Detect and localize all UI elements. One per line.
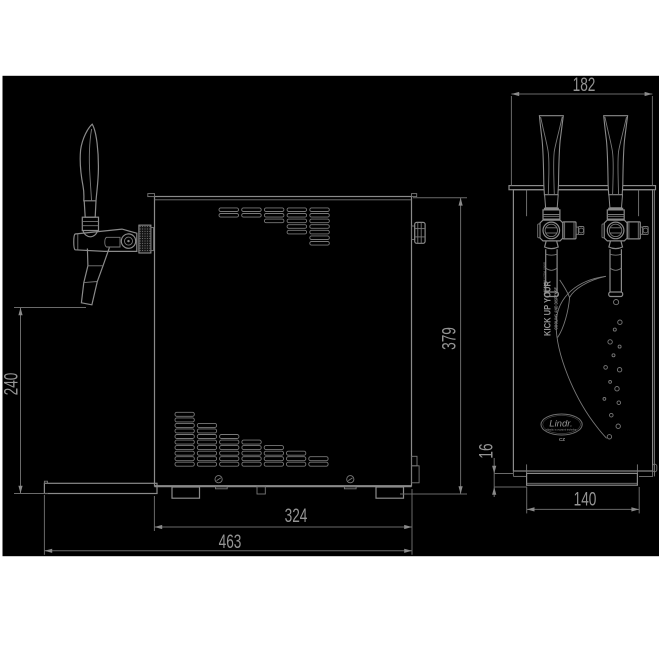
svg-text:CZ: CZ bbox=[559, 437, 565, 442]
svg-text:379: 379 bbox=[438, 327, 460, 350]
svg-text:324: 324 bbox=[285, 505, 308, 527]
svg-text:240: 240 bbox=[0, 373, 22, 396]
svg-text:chladici a vycepni technika: chladici a vycepni technika bbox=[546, 428, 577, 432]
svg-text:140: 140 bbox=[574, 488, 597, 510]
svg-text:182: 182 bbox=[573, 74, 596, 96]
svg-text:16: 16 bbox=[475, 443, 497, 458]
svg-text:PIVNI CHLAZENI LINDR: PIVNI CHLAZENI LINDR bbox=[542, 262, 546, 292]
svg-text:463: 463 bbox=[219, 531, 242, 553]
